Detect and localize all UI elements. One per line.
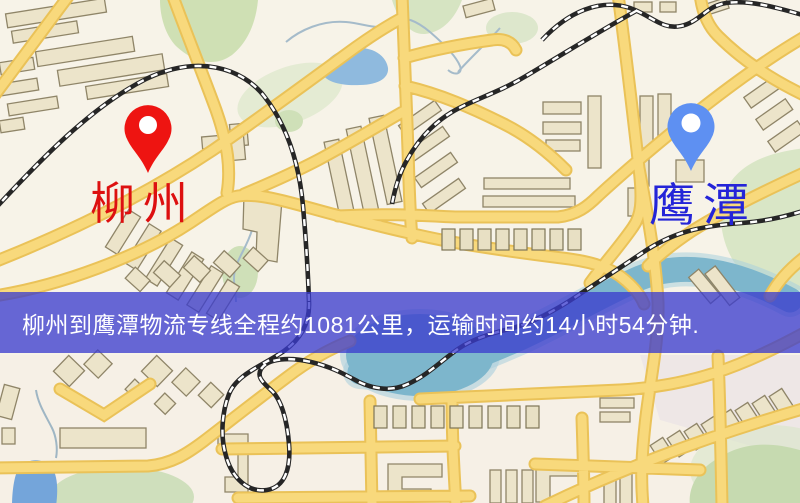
destination-label: 鹰潭 xyxy=(649,179,757,231)
origin-pin-hole xyxy=(139,116,157,134)
destination-pin-hole xyxy=(682,114,701,133)
origin-label: 柳州 xyxy=(90,178,196,229)
map-art: 柳州 鹰潭 xyxy=(0,0,800,503)
map-canvas[interactable]: 柳州 鹰潭 柳州到鹰潭物流专线全程约1081公里，运输时间约14小时54分钟. xyxy=(0,0,800,503)
route-info-text: 柳州到鹰潭物流专线全程约1081公里，运输时间约14小时54分钟. xyxy=(0,306,699,340)
route-info-banner: 柳州到鹰潭物流专线全程约1081公里，运输时间约14小时54分钟. xyxy=(0,292,800,353)
